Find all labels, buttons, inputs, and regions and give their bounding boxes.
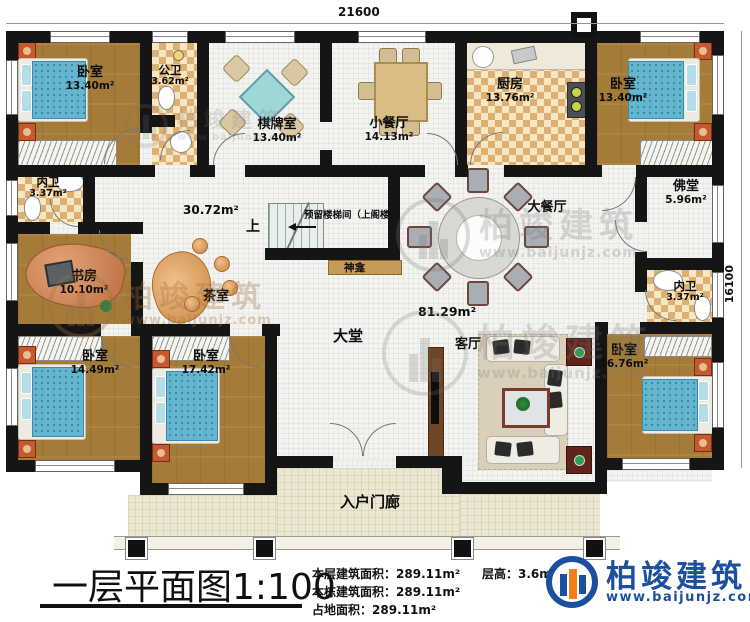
wall-segment — [197, 31, 209, 177]
window — [6, 180, 18, 216]
wall-segment — [396, 456, 442, 468]
chair — [407, 226, 432, 248]
porch-column — [584, 538, 605, 559]
sofa-cushion — [513, 339, 530, 355]
window — [712, 185, 724, 243]
bed-pillow — [21, 64, 32, 86]
shower-head-icon — [173, 50, 184, 61]
plant-icon — [100, 300, 112, 312]
room-label-kitchen: 厨房13.76m² — [486, 78, 535, 104]
stair-note-label: 预留楼梯间（上阁楼） — [304, 207, 399, 221]
tv-icon — [431, 372, 439, 424]
room-label-small-dining: 小餐厅14.13m² — [365, 117, 414, 143]
stat-floor-area: 本层建筑面积：289.11m² — [312, 565, 460, 582]
wall-segment — [262, 324, 280, 336]
plant-icon — [516, 397, 530, 411]
stat-floor-height: 层高：3.6m — [482, 565, 552, 582]
nightstand — [18, 123, 36, 141]
stair-direction-arrowhead-icon — [288, 223, 296, 231]
dining-table — [374, 62, 428, 122]
room-label-inner-bath-right: 内卫3.37m² — [666, 280, 704, 304]
stair-up-label: 上 — [246, 216, 260, 236]
brand-url: www.baijunjz.com — [606, 590, 750, 605]
wardrobe — [644, 336, 712, 357]
stair-direction-line — [296, 226, 316, 228]
stove-burner-icon — [571, 87, 582, 98]
wall-segment — [595, 322, 608, 334]
stat-footprint-area: 占地面积：289.11m² — [312, 601, 436, 618]
bed-pillow — [155, 402, 166, 424]
porch-floor — [460, 494, 600, 540]
room-label-bedroom-tl: 卧室13.40m² — [66, 66, 115, 92]
bed-pillow — [155, 376, 166, 398]
wall-segment — [140, 115, 175, 127]
title-text: 一层平面图 — [52, 567, 232, 608]
wall-segment — [504, 165, 602, 177]
room-label-living-room: 客厅 — [455, 338, 481, 353]
window — [712, 362, 724, 428]
wall-segment — [190, 165, 215, 177]
room-label-inner-bath-left: 内卫3.37m² — [29, 176, 67, 200]
wall-segment — [647, 258, 712, 270]
window — [358, 31, 426, 43]
dimension-line-top — [6, 23, 724, 24]
wall-segment — [140, 336, 152, 495]
stove-burner-icon — [571, 101, 582, 112]
nightstand — [694, 123, 712, 141]
room-label-tea-room: 茶室 — [203, 290, 229, 305]
room-label-bedroom-tr: 卧室13.40m² — [599, 78, 648, 104]
floor-cushion-icon — [214, 256, 230, 272]
window — [712, 55, 724, 115]
flue-box — [571, 12, 597, 38]
kitchen-sink-icon — [472, 46, 494, 68]
window — [225, 31, 295, 43]
side-table — [566, 446, 592, 474]
room-label-buddha-hall: 佛堂5.96m² — [665, 180, 706, 206]
shrine-label: 神龛 — [344, 260, 365, 275]
wall-segment — [265, 248, 400, 260]
porch-column — [126, 538, 147, 559]
bed-pillow — [698, 381, 709, 401]
room-label-porch: 入户门廊 — [340, 494, 400, 511]
window — [6, 243, 18, 301]
window — [622, 458, 690, 470]
wall-segment — [442, 482, 607, 494]
wall-segment — [265, 456, 333, 468]
bed-pillow — [21, 90, 32, 112]
wall-segment — [133, 324, 230, 336]
porch-column — [254, 538, 275, 559]
wall-segment — [320, 31, 332, 122]
dimension-right: 16100 — [723, 265, 736, 303]
bed-pillow — [686, 64, 697, 86]
toilet-icon — [158, 86, 175, 110]
shrine-cabinet — [328, 260, 402, 275]
window — [6, 368, 18, 426]
sofa-cushion — [516, 441, 534, 457]
room-label-public-bath: 公卫3.62m² — [151, 64, 189, 88]
bed-pillow — [698, 403, 709, 423]
window — [152, 31, 188, 43]
page-title: 一层平面图1:100 — [52, 558, 336, 610]
wall-segment — [640, 322, 712, 334]
wall-segment — [265, 336, 277, 495]
hall-area-value: 81.29m² — [418, 304, 476, 319]
window — [50, 31, 110, 43]
wall-segment — [6, 324, 101, 336]
sofa-cushion — [494, 441, 512, 457]
room-label-main-dining: 大餐厅 — [527, 201, 566, 216]
room-label-bedroom-br: 卧室16.76m² — [600, 344, 649, 370]
chair — [467, 281, 489, 306]
nightstand — [694, 358, 712, 376]
chair — [524, 226, 549, 248]
wardrobe — [18, 140, 117, 166]
nightstand — [18, 346, 36, 364]
floor-plan-page: 卧室13.40m² 公卫3.62m² 棋牌室13.40m² 小餐厅14.13m²… — [0, 0, 750, 622]
dimension-top: 21600 — [338, 5, 380, 19]
toilet-icon — [24, 196, 41, 221]
sofa-cushion — [547, 369, 563, 387]
side-table — [566, 338, 592, 366]
porch-step-band — [114, 536, 620, 550]
room-label-great-hall: 大堂 — [333, 328, 363, 345]
open-area-value: 30.72m² — [183, 203, 239, 217]
window — [168, 483, 244, 495]
wardrobe — [640, 140, 714, 166]
room-label-study: 书房10.10m² — [60, 270, 109, 296]
title-underline — [40, 604, 302, 608]
bed-pillow — [21, 398, 32, 420]
nightstand — [152, 350, 170, 368]
window — [640, 31, 700, 43]
bed-mattress — [166, 371, 218, 441]
floor-cushion-icon — [184, 296, 200, 312]
sofa-cushion — [492, 339, 510, 355]
window — [6, 60, 18, 115]
wall-segment — [458, 165, 468, 177]
wall-segment — [635, 252, 647, 292]
stat-building-area: 本栋建筑面积：289.11m² — [312, 583, 460, 600]
bed-pillow — [21, 372, 32, 394]
brand-logo-icon — [546, 556, 598, 608]
porch-floor — [128, 495, 277, 540]
wall-segment — [455, 31, 467, 177]
wall-segment — [636, 165, 712, 177]
room-label-bedroom-bl: 卧室14.49m² — [71, 350, 120, 376]
nightstand — [152, 444, 170, 462]
bed-pillow — [686, 90, 697, 112]
wall-segment — [635, 177, 647, 222]
floor-cushion-icon — [192, 238, 208, 254]
dimension-line-right — [741, 31, 742, 468]
room-label-bedroom-bm: 卧室17.42m² — [182, 350, 231, 376]
bed-mattress — [32, 367, 84, 437]
nightstand — [694, 434, 712, 452]
room-label-chess-room: 棋牌室13.40m² — [253, 118, 302, 144]
wall-segment — [6, 222, 50, 234]
bed-mattress — [642, 379, 698, 431]
window — [35, 460, 115, 472]
porch-column — [452, 538, 473, 559]
wall-segment — [585, 31, 597, 177]
nightstand — [18, 440, 36, 458]
chair — [467, 168, 489, 193]
round-dining-table-top — [456, 215, 502, 261]
